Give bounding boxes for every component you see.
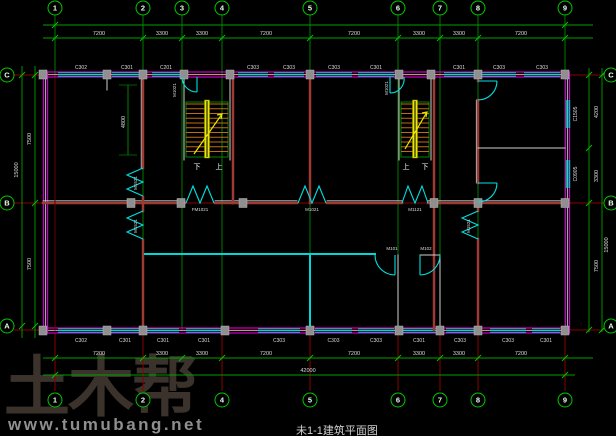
svg-text:B: B: [4, 199, 10, 208]
svg-text:8: 8: [476, 396, 480, 405]
interior-dimension: 4800: [119, 85, 137, 155]
drawing-title: 未1-1建筑平面图: [296, 423, 378, 436]
window-label: C303: [247, 65, 259, 71]
column: [395, 326, 403, 335]
interior-dim-text: 4800: [121, 116, 127, 128]
window-label: C302: [75, 65, 87, 71]
dim-text-bottom: 3300: [453, 351, 465, 357]
axis-bubble-top-9: 9: [558, 1, 572, 15]
svg-text:3: 3: [180, 4, 184, 13]
svg-text:5: 5: [308, 4, 312, 13]
axis-bubble-bottom-1: 1: [48, 393, 62, 407]
axis-bubble-top-2: 2: [136, 1, 150, 15]
column: [180, 70, 188, 79]
svg-text:2: 2: [141, 4, 145, 13]
dim-text-top: 7200: [93, 31, 105, 37]
door-label: M1521: [133, 176, 138, 190]
door-stair2-entry: [390, 77, 404, 93]
svg-text:A: A: [608, 322, 614, 331]
window-label: C303: [370, 338, 382, 344]
axis-bubble-bottom-2: 2: [136, 393, 150, 407]
column: [139, 326, 147, 335]
column: [427, 70, 435, 79]
watermark-logo: 土木帮: [4, 350, 196, 424]
door-label: M102: [420, 246, 432, 251]
window-label: C303: [454, 338, 466, 344]
svg-text:B: B: [608, 199, 614, 208]
window-label: C0905: [573, 166, 579, 181]
svg-text:C: C: [4, 71, 10, 80]
stair2-down-label: 下: [422, 163, 429, 171]
cad-floor-plan-viewport: 土木帮 720033003300720072003300330072007200…: [0, 0, 616, 436]
dim-text-left-total: 15000: [14, 162, 20, 177]
stair1-down-label: 下: [194, 163, 201, 171]
window-label: C303: [328, 65, 340, 71]
column: [39, 70, 47, 79]
dim-text-bottom: 7200: [260, 351, 272, 357]
axis-bubble-top-7: 7: [433, 1, 447, 15]
dim-text-right: 7500: [594, 260, 600, 272]
door-label: FM1021: [192, 207, 209, 212]
double-door-corridor-1: [186, 186, 214, 203]
svg-text:8: 8: [476, 4, 480, 13]
window-label: C1505: [573, 106, 579, 121]
svg-text:7: 7: [438, 4, 442, 13]
svg-text:1: 1: [53, 396, 57, 405]
axis-bubble-left-B: B: [0, 196, 14, 210]
dim-text-top: 7200: [260, 31, 272, 37]
column: [239, 199, 247, 208]
svg-text:2: 2: [141, 396, 145, 405]
column: [474, 70, 482, 79]
column: [474, 199, 482, 208]
dim-text-top: 3300: [453, 31, 465, 37]
dim-text-bottom: 7200: [348, 351, 360, 357]
axis-bubble-left-A: A: [0, 319, 14, 333]
dim-text-left: 7500: [27, 258, 33, 270]
svg-text:6: 6: [396, 396, 400, 405]
door-label: M1521: [133, 219, 138, 233]
door-corridor-end-1: [375, 255, 395, 275]
door-label: M1021: [384, 81, 389, 95]
dim-text-left: 7500: [27, 133, 33, 145]
svg-text:1: 1: [53, 4, 57, 13]
window-label: C303: [502, 338, 514, 344]
dim-text-bottom: 3300: [413, 351, 425, 357]
axis-bubble-bottom-8: 8: [471, 393, 485, 407]
column: [561, 326, 569, 335]
svg-text:9: 9: [563, 396, 567, 405]
column: [226, 70, 234, 79]
axis-bubble-bottom-5: 5: [303, 393, 317, 407]
dim-text-top: 7200: [515, 31, 527, 37]
window-label: C301: [157, 338, 169, 344]
svg-text:7: 7: [438, 396, 442, 405]
svg-text:6: 6: [396, 4, 400, 13]
double-door-corridor-2: [298, 186, 326, 203]
column: [39, 326, 47, 335]
dim-text-bottom: 7200: [93, 351, 105, 357]
axis-bubble-top-5: 5: [303, 1, 317, 15]
column: [127, 199, 135, 208]
window-label: C303: [328, 338, 340, 344]
svg-text:5: 5: [308, 396, 312, 405]
column: [436, 326, 444, 335]
column: [474, 326, 482, 335]
window-label: C301: [370, 65, 382, 71]
window-label: C303: [493, 65, 505, 71]
axis-bubble-bottom-7: 7: [433, 393, 447, 407]
dim-text-bottom-total: 42000: [300, 368, 315, 374]
dim-text-top: 3300: [196, 31, 208, 37]
axis-bubble-top-3: 3: [175, 1, 189, 15]
dim-text-top: 7200: [348, 31, 360, 37]
axis-bubble-bottom-4: 4: [215, 393, 229, 407]
door-label: M101: [386, 246, 398, 251]
window-label: C301: [453, 65, 465, 71]
window-label: C301: [121, 65, 133, 71]
axis-bubble-right-B: B: [604, 196, 616, 210]
door-label: M1121: [408, 207, 422, 212]
axis-bubble-right-A: A: [604, 319, 616, 333]
dim-text-bottom: 3300: [196, 351, 208, 357]
windows: C302C301C201C303C303C303C301C301C303C303…: [58, 65, 579, 344]
double-door-corridor-3: [402, 186, 428, 203]
axis-bubble-bottom-9: 9: [558, 393, 572, 407]
window-label: C303: [273, 338, 285, 344]
dim-text-bottom: 3300: [156, 351, 168, 357]
dim-text-right: 3300: [594, 170, 600, 182]
axis-bubble-bottom-6: 6: [391, 393, 405, 407]
svg-text:A: A: [4, 322, 10, 331]
window-label: C301: [413, 338, 425, 344]
axis-bubble-right-C: C: [604, 68, 616, 82]
axis-bubble-top-4: 4: [215, 1, 229, 15]
column: [177, 199, 185, 208]
column: [103, 326, 111, 335]
window-label: C301: [540, 338, 552, 344]
column: [306, 70, 314, 79]
axis-bubble-left-C: C: [0, 68, 14, 82]
window-label: C303: [536, 65, 548, 71]
dim-text-right: 4200: [594, 106, 600, 118]
column: [139, 70, 147, 79]
window-label: C201: [160, 65, 172, 71]
axis-bubble-top-1: 1: [48, 1, 62, 15]
window-label: C301: [198, 338, 210, 344]
door-corridor-end-2: [420, 255, 440, 275]
door-label: M1021: [172, 83, 177, 97]
column: [103, 70, 111, 79]
column: [395, 70, 403, 79]
column: [561, 70, 569, 79]
dim-text-top: 3300: [413, 31, 425, 37]
watermark-url: www.tumubang.net: [7, 415, 204, 434]
door-label: M1521: [466, 219, 471, 233]
window-label: C301: [119, 338, 131, 344]
svg-text:9: 9: [563, 4, 567, 13]
axis-bubble-top-6: 6: [391, 1, 405, 15]
window-label: C303: [283, 65, 295, 71]
axis-bubble-top-8: 8: [471, 1, 485, 15]
stair1-up-label: 上: [216, 162, 223, 171]
column: [306, 326, 314, 335]
dim-text-right-total: 15000: [604, 237, 610, 252]
dim-text-top: 3300: [156, 31, 168, 37]
floor-plan-drawing: 土木帮 720033003300720072003300330072007200…: [0, 0, 616, 436]
door-right-room-north: [478, 81, 497, 100]
column: [430, 199, 438, 208]
column: [561, 199, 569, 208]
column: [221, 326, 229, 335]
svg-text:C: C: [608, 71, 614, 80]
stair2-up-label: 上: [403, 162, 410, 171]
door-label: M1021: [305, 207, 319, 212]
window-label: C302: [75, 338, 87, 344]
dim-text-bottom: 7200: [515, 351, 527, 357]
